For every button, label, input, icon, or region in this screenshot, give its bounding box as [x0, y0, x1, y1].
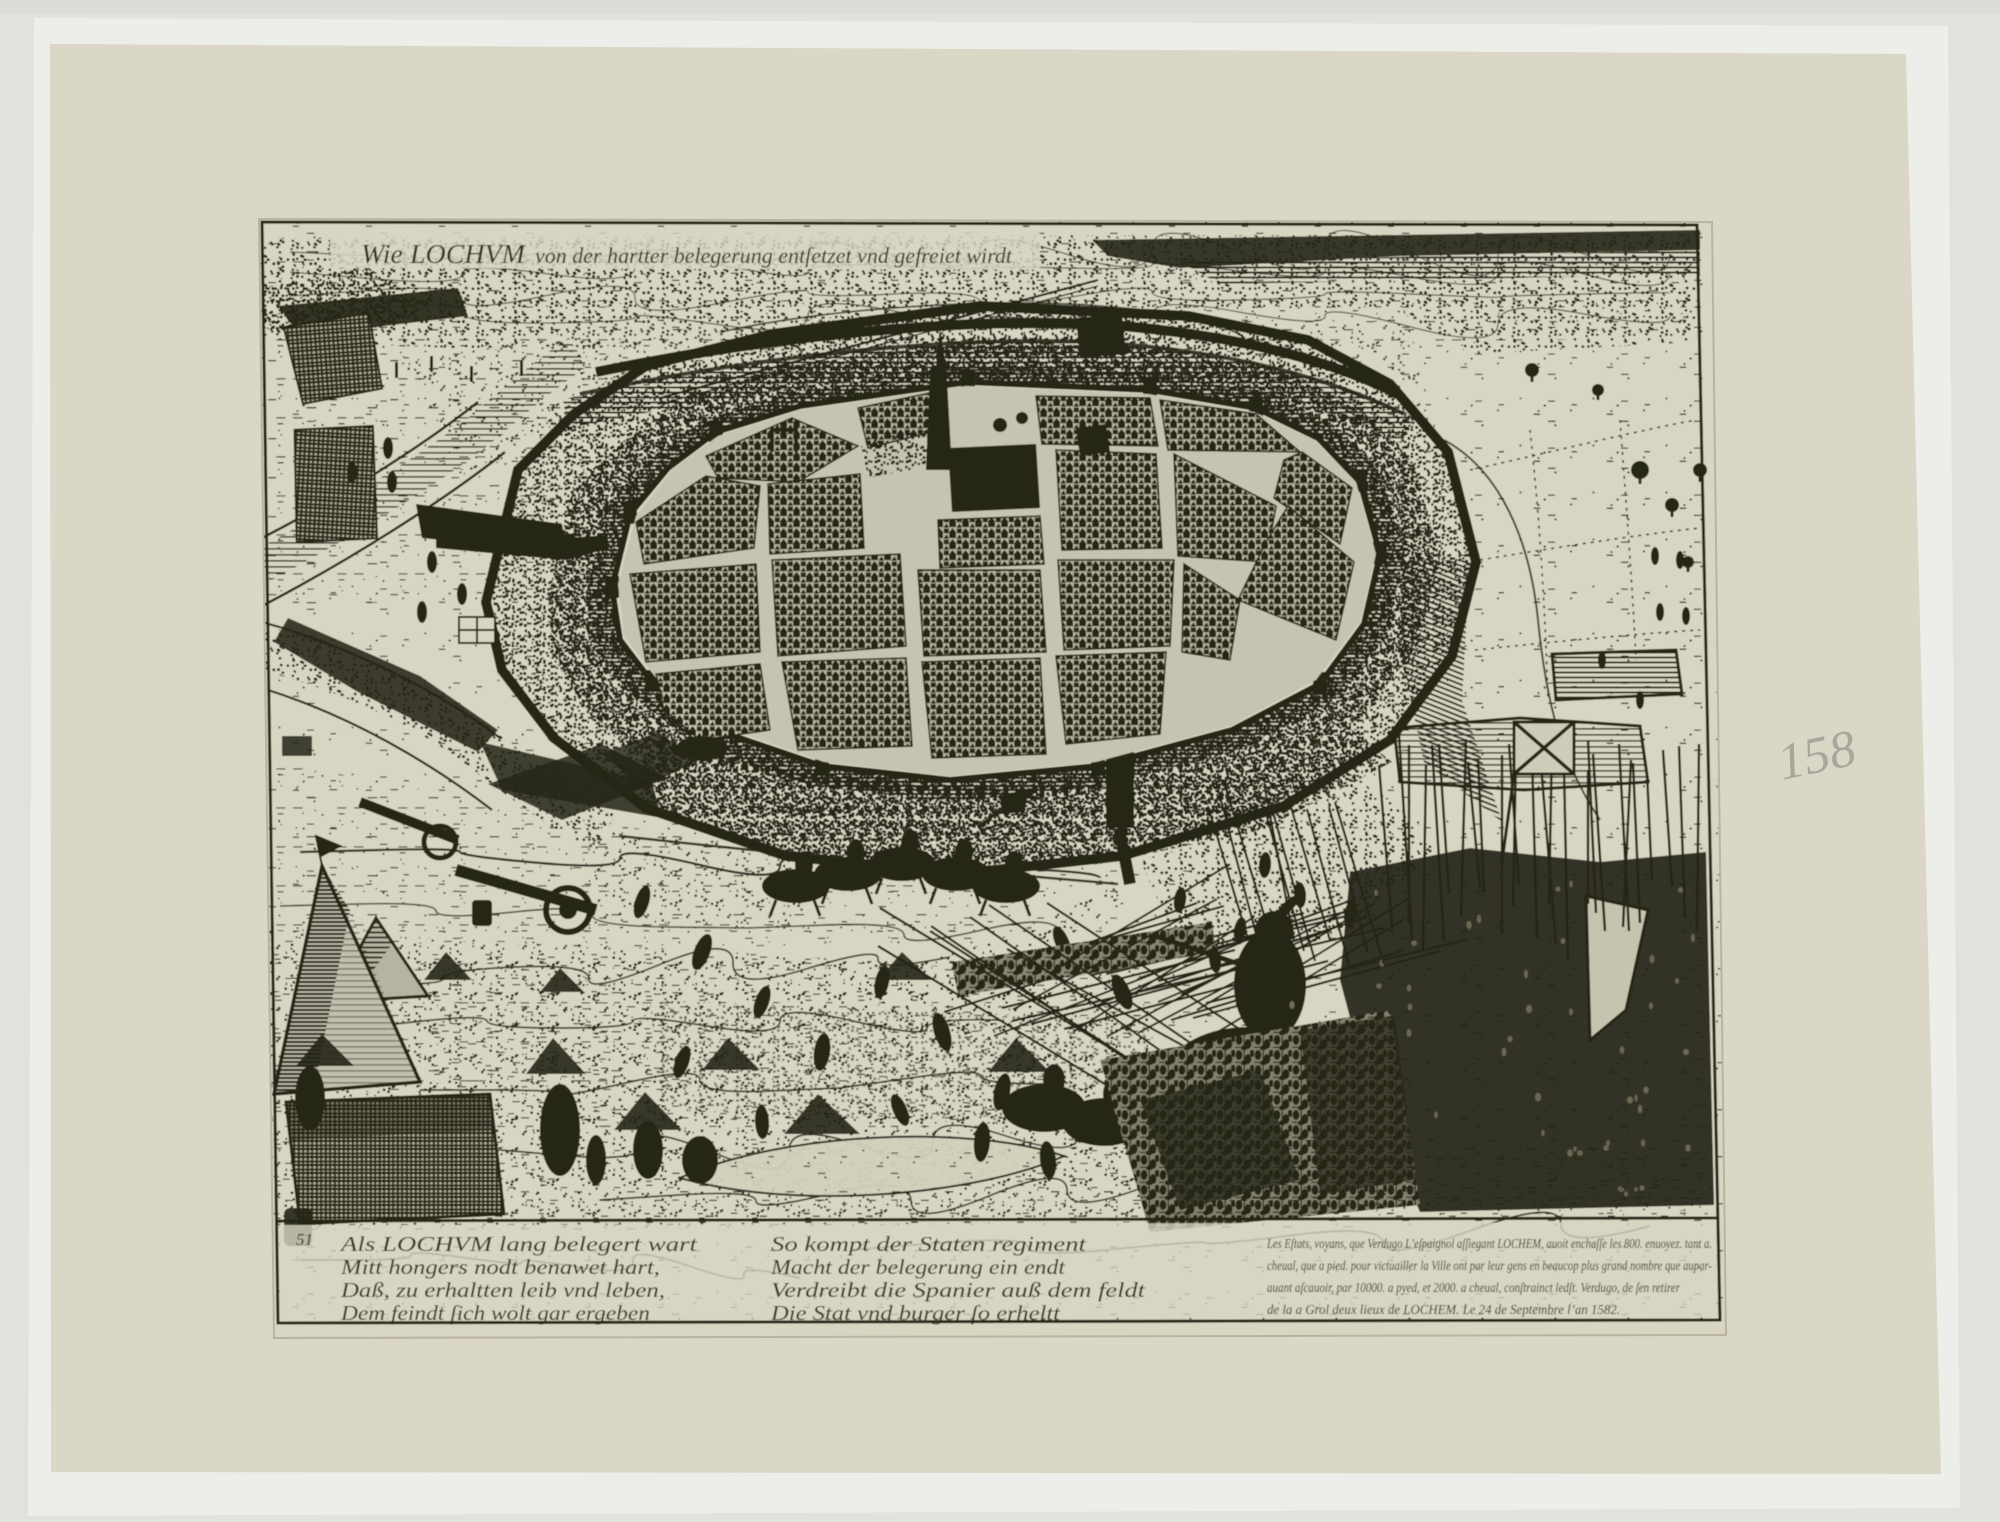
svg-text:Wie LOCHVM: Wie LOCHVM: [361, 239, 527, 269]
svg-text:Mitt hongers nodt benawet hart: Mitt hongers nodt benawet hart,: [340, 1255, 660, 1279]
svg-text:Verdreibt die Spanier auß dem: Verdreibt die Spanier auß dem feldt: [771, 1278, 1146, 1302]
svg-text:cheual, que a pied. pour victu: cheual, que a pied. pour victuailler la …: [1267, 1258, 1712, 1273]
svg-text:Als LOCHVM lang belegert wart: Als LOCHVM lang belegert wart: [338, 1232, 698, 1256]
svg-text:von der hartter belegerung ent: von der hartter belegerung entſetzet vnd…: [535, 243, 1013, 268]
svg-text:Les Eſtats, voyans, que Verdug: Les Eſtats, voyans, que Verdugo L’eſpaig…: [1266, 1236, 1712, 1251]
svg-text:de la a Grol deux lieux de LOC: de la a Grol deux lieux de LOCHEM. Le 24…: [1267, 1302, 1620, 1317]
svg-text:Macht der belegerung ein endt: Macht der belegerung ein endt: [770, 1255, 1066, 1279]
svg-text:51: 51: [296, 1230, 313, 1249]
svg-text:So kompt der Staten regiment: So kompt der Staten regiment: [771, 1232, 1087, 1256]
svg-text:Daß, zu erhaltten leib vnd leb: Daß, zu erhaltten leib vnd leben,: [340, 1278, 665, 1302]
svg-text:auant aſcauoir, par 10000. a p: auant aſcauoir, par 10000. a pyed, et 20…: [1267, 1280, 1681, 1295]
